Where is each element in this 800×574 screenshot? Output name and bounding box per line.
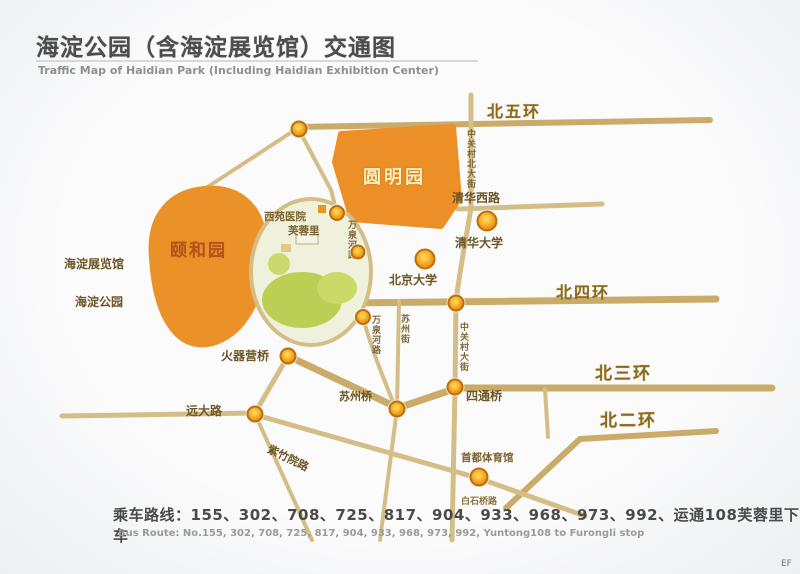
road-zhongguancun-street	[455, 302, 456, 387]
park-green-area-2	[317, 272, 357, 304]
place-label-huoqiying-bridge: 火器营桥	[221, 347, 269, 364]
bus-route-text-en: Bus Route: No.155, 302, 708, 725, 817, 9…	[118, 528, 644, 539]
title-underline	[36, 60, 478, 62]
poi-dot-junction-north	[291, 121, 308, 138]
page-subtitle: Traffic Map of Haidian Park (Including H…	[38, 64, 439, 77]
place-label-capital-gym: 首都体育馆	[461, 450, 514, 465]
road-label-north-2nd-ring: 北二环	[600, 406, 657, 431]
poi-dot-capital-gym	[470, 468, 489, 487]
place-label-xiyuan-hospital: 西苑医院	[264, 209, 306, 224]
place-label-haidian-park: 海淀公园	[75, 293, 123, 310]
poi-dot-tsinghua-univ	[477, 211, 498, 232]
road-label-zhongguancun-north: 中关村北大街	[464, 129, 477, 189]
area-yiheyuan-shape	[151, 188, 266, 346]
poi-dot-sitong-bridge	[447, 379, 464, 396]
road-label-north-5th-ring: 北五环	[487, 98, 541, 122]
road-label-north-4th-ring: 北四环	[556, 279, 610, 303]
poi-dot-peking-univ	[415, 249, 436, 270]
area-label-yuanmingyuan: 圆明园	[363, 163, 426, 189]
park-building-shape	[281, 244, 291, 252]
poi-dot-zhongguancun-4th-ring	[448, 295, 465, 312]
road-label-zhongguancun-street: 中关村大街	[457, 322, 470, 372]
poi-dot-wanquanhe-4th-ring	[355, 309, 371, 325]
bus-route-text-cn: 乘车路线：155、302、708、725、817、904、933、968、973…	[113, 504, 800, 546]
park-green-area-3	[268, 253, 290, 275]
corner-mark: EF	[781, 559, 792, 569]
place-label-sitong-bridge: 四通桥	[466, 387, 502, 404]
area-label-yiheyuan: 颐和园	[170, 236, 227, 261]
road-connector-east	[545, 389, 548, 437]
poi-dot-xiyuan	[329, 205, 345, 221]
road-north-4th-ring	[350, 299, 716, 303]
place-label-haidian-exhibition: 海淀展览馆	[64, 255, 124, 272]
road-yuanda-huoqiying	[255, 356, 288, 413]
road-label-wanquanhe-south: 万泉河路	[369, 315, 382, 355]
road-label-suzhou-street: 苏州街	[398, 314, 411, 344]
poi-dot-yuanda-junction	[247, 406, 264, 423]
poi-dot-huoqiying-bridge	[280, 348, 297, 365]
road-yuanda	[62, 413, 255, 416]
page-title: 海淀公园（含海淀展览馆）交通图	[36, 28, 396, 62]
road-yiheyuan-north	[206, 128, 298, 188]
place-label-furongli: 芙蓉里	[288, 223, 320, 238]
map-page: 海淀公园（含海淀展览馆）交通图 Traffic Map of Haidian P…	[0, 0, 800, 574]
road-label-qinghua-west: 清华西路	[452, 189, 500, 206]
place-label-peking-univ: 北京大学	[389, 271, 437, 288]
road-north-2nd-ring	[506, 431, 716, 508]
road-label-yuanda: 远大路	[186, 402, 222, 419]
road-label-north-3rd-ring: 北三环	[595, 359, 652, 384]
xiyuan-marker-square	[318, 205, 326, 213]
poi-dot-suzhou-bridge	[389, 401, 406, 418]
place-label-suzhou-bridge: 苏州桥	[339, 388, 372, 404]
poi-dot-park-east	[351, 245, 366, 260]
road-zhongguancun-mid	[456, 208, 471, 302]
place-label-tsinghua-univ: 清华大学	[455, 234, 503, 251]
